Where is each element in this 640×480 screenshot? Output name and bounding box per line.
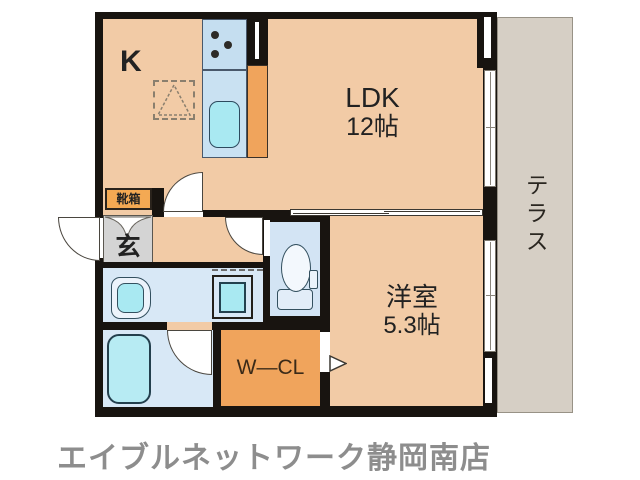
ldk-size-label: 12帖 — [325, 114, 420, 140]
ldk-label: LDK — [325, 83, 420, 112]
stove-burner-icon — [211, 50, 219, 58]
fridge-space — [153, 80, 195, 120]
pipe-space-slot — [255, 22, 259, 59]
pipe-space-bottom — [485, 358, 492, 403]
inner-wall-bath-top-left — [103, 322, 167, 330]
window-sash-tick — [486, 127, 495, 128]
sliding-door — [290, 209, 483, 216]
wicl-room: W—CL — [221, 330, 320, 406]
store-name-text: エイブルネットワーク静岡南店 — [57, 433, 491, 477]
window-ldk — [484, 70, 496, 187]
window-western-room — [484, 240, 496, 352]
toilet-room — [270, 222, 320, 316]
toilet-side-unit — [309, 270, 318, 289]
stove-burner-icon — [224, 41, 232, 49]
wicl-label: W—CL — [237, 357, 305, 379]
window-sash-tick — [486, 295, 495, 296]
shoe-box: 靴箱 — [105, 188, 152, 210]
kitchen-sink — [209, 101, 240, 148]
washroom — [103, 268, 263, 322]
inner-wall-bath-top-right — [212, 322, 330, 330]
toilet-bowl — [281, 244, 311, 292]
western-room-size-label: 5.3帖 — [352, 313, 472, 338]
terrace-label: テラス — [523, 173, 547, 257]
window-sash-line — [490, 242, 491, 350]
western-room-label: 洋室 — [352, 284, 472, 311]
western-room-label-block: 洋室 5.3帖 — [352, 284, 472, 338]
fridge-space-icon — [155, 82, 193, 118]
washbasin-bowl — [117, 283, 144, 313]
toilet-tank — [277, 289, 313, 310]
sliding-door-panel — [384, 211, 480, 212]
washer-pan-inner — [219, 282, 246, 313]
inner-wall-bath-wicl — [213, 322, 221, 407]
entrance-label: 玄 — [104, 234, 152, 260]
window-sash-line — [490, 72, 491, 185]
entrance-area: 玄 — [103, 215, 153, 266]
floorplan-canvas: テラス K LDK 12帖 靴箱 玄 — [0, 0, 640, 480]
terrace-area: テラス — [497, 17, 573, 413]
stove-burner-icon — [211, 31, 219, 39]
kitchen-label: K — [120, 46, 142, 78]
bathtub — [107, 334, 151, 404]
inner-wall-entrance-stub — [152, 188, 164, 217]
pipe-space-kitchen — [247, 19, 268, 65]
inner-wall-west-room — [320, 210, 330, 407]
washroom-dashed-line — [212, 269, 263, 271]
ldk-label-block: LDK 12帖 — [325, 83, 420, 141]
kitchen-stove — [202, 19, 247, 70]
front-door-arc — [58, 217, 100, 261]
direction-arrow-icon — [329, 355, 347, 372]
kitchen-counter-strip — [247, 65, 268, 158]
pipe-space-top — [484, 17, 491, 58]
shoe-box-label: 靴箱 — [116, 193, 140, 206]
sliding-door-panel — [293, 213, 389, 214]
